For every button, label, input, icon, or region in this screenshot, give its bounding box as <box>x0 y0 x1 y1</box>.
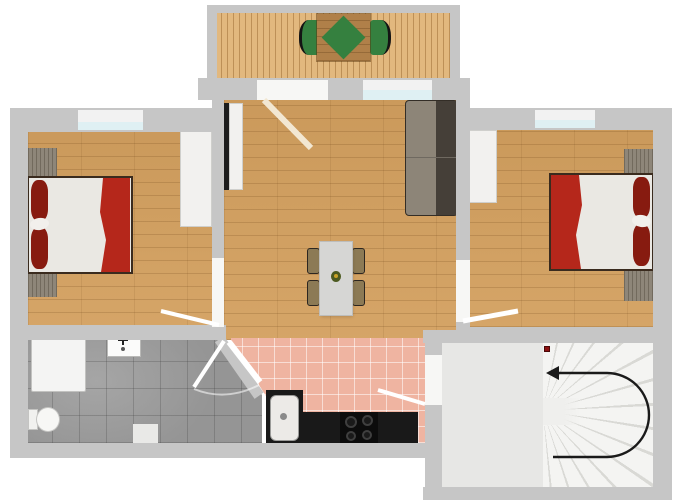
outer-wall-bottom <box>10 443 442 458</box>
sofa[interactable] <box>405 100 458 216</box>
shower[interactable] <box>31 338 86 392</box>
bath-mat <box>133 424 158 445</box>
bedroom-left-window <box>78 110 143 130</box>
bedroom-right-door-opening[interactable] <box>456 260 470 322</box>
outer-wall-left <box>10 108 28 458</box>
dining-chair-tl[interactable] <box>307 248 320 274</box>
wardrobe-left[interactable] <box>180 130 212 227</box>
tv-console[interactable] <box>229 103 243 190</box>
kitchen-door-opening[interactable] <box>425 355 442 405</box>
nightstand-right-top[interactable] <box>624 149 653 173</box>
dining-chair-br[interactable] <box>352 280 365 306</box>
burner-icon <box>345 416 357 428</box>
bed-left[interactable] <box>27 176 133 274</box>
bedroom-left-wall-bottom <box>10 325 226 340</box>
balcony-wall-right <box>450 5 460 89</box>
outdoor-chair-right[interactable] <box>369 20 391 55</box>
outer-wall-right <box>653 108 672 500</box>
sofa-seat-gap <box>406 157 457 158</box>
wardrobe-right[interactable] <box>468 130 497 203</box>
dining-chair-bl[interactable] <box>307 280 320 306</box>
bed-left-pillow-bottom <box>31 227 48 269</box>
bed-left-blanket <box>99 178 130 272</box>
balcony-wall-top <box>207 5 460 13</box>
bed-right-pillow-top <box>633 177 650 218</box>
nightstand-right-bottom[interactable] <box>624 271 653 301</box>
table-centerpiece <box>331 271 341 282</box>
living-window <box>363 80 432 100</box>
balcony-door-opening[interactable] <box>257 80 328 100</box>
staircase-wall-top <box>423 330 672 343</box>
floor-plan-canvas <box>0 0 700 500</box>
bedroom-right-window <box>535 110 595 128</box>
sofa-back <box>436 101 457 215</box>
stair-start-dot <box>544 346 550 352</box>
toilet[interactable] <box>28 407 60 432</box>
kitchen-faucet-icon <box>280 413 287 420</box>
dining-chair-tr[interactable] <box>352 248 365 274</box>
stove[interactable] <box>340 412 378 445</box>
bedroom-left-door-opening[interactable] <box>212 258 224 327</box>
burner-icon <box>362 430 372 440</box>
bed-right[interactable] <box>549 173 654 271</box>
bed-right-blanket <box>551 175 583 269</box>
bathroom-sink[interactable] <box>107 337 141 357</box>
burner-icon <box>362 415 373 426</box>
staircase-wall-bottom <box>423 487 672 500</box>
bed-right-pillow-bottom <box>633 224 650 266</box>
nightstand-left-top[interactable] <box>28 148 57 178</box>
burner-icon <box>346 431 356 441</box>
balcony-wall-left <box>207 5 217 89</box>
staircase-landing-fade <box>543 398 581 425</box>
kitchen-sink-cabinet[interactable] <box>266 390 303 445</box>
bed-left-pillow-top <box>31 180 48 221</box>
